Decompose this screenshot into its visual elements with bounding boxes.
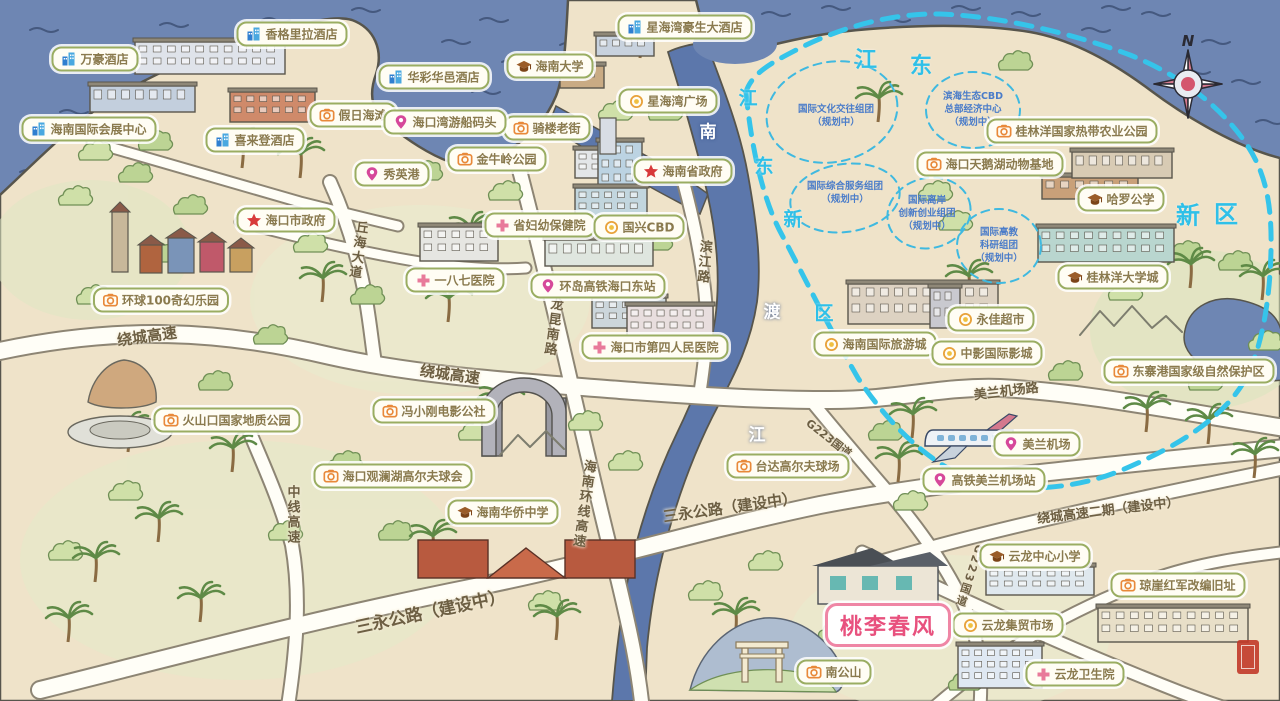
- poi-xinghai-bay-plaza[interactable]: 星海湾广场: [618, 89, 717, 114]
- camera-icon: [926, 157, 941, 172]
- poi-meilan-airport-hsr-station[interactable]: 高铁美兰机场站: [922, 468, 1045, 493]
- medical-cross-icon: [494, 218, 509, 233]
- poi-harrow-school[interactable]: 哈罗公学: [1077, 187, 1164, 212]
- poi-label: 海南华侨中学: [476, 504, 548, 521]
- poi-label: 海口观澜湖高尔夫球会: [342, 468, 462, 485]
- poi-label: 永佳超市: [976, 311, 1024, 328]
- compass-north-label: N: [1182, 32, 1195, 50]
- poi-qilou-old-street[interactable]: 骑楼老街: [503, 116, 590, 141]
- district-label-char: 新: [1176, 196, 1200, 231]
- poi-label: 金牛岭公园: [476, 151, 536, 168]
- poi-label: 桂林洋国家热带农业公园: [1015, 123, 1147, 140]
- map-pin-icon: [364, 167, 379, 182]
- poi-label: 海口湾游船码头: [412, 114, 496, 131]
- poi-label: 秀英港: [383, 166, 419, 183]
- camera-icon: [736, 459, 751, 474]
- red-star-icon: [246, 213, 261, 228]
- hotel-building-icon: [388, 70, 403, 85]
- planning-region-label: 国际高教 科研组团 （规划中）: [975, 227, 1023, 265]
- red-star-icon: [643, 164, 658, 179]
- poi-label: 哈罗公学: [1106, 191, 1154, 208]
- camera-icon: [319, 108, 334, 123]
- poi-fourth-peoples-hospital[interactable]: 海口市第四人民医院: [581, 335, 728, 360]
- poi-label: 海口天鹅湖动物基地: [945, 156, 1053, 173]
- poi-label: 云龙中心小学: [1008, 548, 1080, 565]
- poi-volcano-geopark[interactable]: 火山口国家地质公园: [153, 408, 300, 433]
- planning-region-label: 国际综合服务组团 （规划中）: [807, 181, 883, 207]
- poi-label: 海南国际旅游城: [842, 336, 926, 353]
- poi-xiuying-port[interactable]: 秀英港: [354, 162, 429, 187]
- map-pin-icon: [540, 279, 555, 294]
- poi-nangong-mountain[interactable]: 南公山: [796, 660, 871, 685]
- poi-hainan-convention-center[interactable]: 海南国际会展中心: [21, 117, 156, 142]
- poi-label: 星海湾广场: [647, 93, 707, 110]
- poi-taida-golf[interactable]: 台达高尔夫球场: [726, 454, 849, 479]
- district-label-char: 东: [754, 152, 773, 179]
- poi-yunlong-market[interactable]: 云龙集贸市场: [952, 613, 1063, 638]
- graduation-cap-icon: [457, 505, 472, 520]
- medical-cross-icon: [1035, 667, 1050, 682]
- featured-taoli-chunfeng[interactable]: 桃李春风: [825, 603, 951, 647]
- poi-guilinyang-university-town[interactable]: 桂林洋大学城: [1057, 265, 1168, 290]
- poi-label: 海南国际会展中心: [50, 121, 146, 138]
- camera-icon: [323, 469, 338, 484]
- camera-icon: [1113, 364, 1128, 379]
- poi-label: 高铁美兰机场站: [951, 472, 1035, 489]
- district-label-char: 东: [910, 48, 932, 80]
- road-label: 滨江路: [692, 239, 715, 285]
- poi-label: 省妇幼保健院: [513, 217, 585, 234]
- hotel-building-icon: [215, 133, 230, 148]
- poi-huacai-huayi-hotel[interactable]: 华彩华邑酒店: [378, 65, 489, 90]
- map-pin-icon: [1003, 437, 1018, 452]
- poi-haikou-east-station[interactable]: 环岛高铁海口东站: [530, 274, 665, 299]
- shop-dot-icon: [962, 618, 977, 633]
- poi-label: 骑楼老街: [532, 120, 580, 137]
- poi-city-government[interactable]: 海口市政府: [236, 208, 335, 233]
- compass-star-icon: [1152, 48, 1224, 120]
- poi-maternal-child-hospital[interactable]: 省妇幼保健院: [484, 213, 595, 238]
- poi-yongjia-supermarket[interactable]: 永佳超市: [947, 307, 1034, 332]
- poi-meilan-airport[interactable]: 美兰机场: [993, 432, 1080, 457]
- poi-label: 环岛高铁海口东站: [559, 278, 655, 295]
- graduation-cap-icon: [1087, 192, 1102, 207]
- poi-label: 海南省政府: [662, 163, 722, 180]
- poi-label: 一八七医院: [434, 272, 494, 289]
- poi-label: 台达高尔夫球场: [755, 458, 839, 475]
- medical-cross-icon: [415, 273, 430, 288]
- camera-icon: [806, 665, 821, 680]
- poi-movie-town-100[interactable]: 环球100奇幻乐园: [93, 288, 229, 313]
- planning-region-label: 国际文化交往组团 （规划中）: [798, 104, 874, 130]
- district-label-char: 江: [855, 42, 877, 74]
- hotel-building-icon: [246, 27, 261, 42]
- poi-label: 琼崖红军改编旧址: [1139, 577, 1235, 594]
- river-label-char: 渡: [764, 298, 781, 323]
- shop-dot-icon: [604, 220, 619, 235]
- poi-dongzhaigang-reserve[interactable]: 东寨港国家级自然保护区: [1103, 359, 1274, 384]
- poi-label: 火山口国家地质公园: [182, 412, 290, 429]
- poi-label: 南公山: [825, 664, 861, 681]
- poi-label: 云龙卫生院: [1054, 666, 1114, 683]
- poi-yunlong-primary-school[interactable]: 云龙中心小学: [979, 544, 1090, 569]
- poi-wanhao-hotel[interactable]: 万豪酒店: [51, 47, 138, 72]
- poi-label: 海口市政府: [265, 212, 325, 229]
- camera-icon: [382, 404, 397, 419]
- camera-icon: [996, 124, 1011, 139]
- poi-xinghaiwan-haosheng-hotel[interactable]: 星海湾豪生大酒店: [617, 15, 752, 40]
- camera-icon: [103, 293, 118, 308]
- poi-label: 冯小刚电影公社: [401, 403, 485, 420]
- poi-provincial-government[interactable]: 海南省政府: [633, 159, 732, 184]
- poi-label: 云龙集贸市场: [981, 617, 1053, 634]
- map-pin-icon: [932, 473, 947, 488]
- compass-rose: N: [1152, 48, 1224, 120]
- poi-qiongya-red-army-site[interactable]: 琼崖红军改编旧址: [1110, 573, 1245, 598]
- poi-guilinyang-agri-park[interactable]: 桂林洋国家热带农业公园: [986, 119, 1157, 144]
- poi-sheraton-hotel[interactable]: 喜来登酒店: [205, 128, 304, 153]
- poi-label: 星海湾豪生大酒店: [646, 19, 742, 36]
- poi-shangri-la-hotel[interactable]: 香格里拉酒店: [236, 22, 347, 47]
- poi-yunlong-clinic[interactable]: 云龙卫生院: [1025, 662, 1124, 687]
- poi-label: 中影国际影城: [960, 345, 1032, 362]
- poi-label: 华彩华邑酒店: [407, 69, 479, 86]
- graduation-cap-icon: [1067, 270, 1082, 285]
- hotel-building-icon: [61, 52, 76, 67]
- poi-label: 海南大学: [535, 58, 583, 75]
- poi-hospital-187[interactable]: 一八七医院: [405, 268, 504, 293]
- shop-dot-icon: [941, 346, 956, 361]
- poi-guoxing-cbd[interactable]: 国兴CBD: [594, 215, 685, 240]
- camera-icon: [457, 152, 472, 167]
- haikou-tourist-map: N 万豪酒店香格里拉酒店华彩华邑酒店喜来登酒店星海湾豪生大酒店海南国际会展中心假…: [0, 0, 1280, 701]
- planning-region-label: 国际离岸 创新创业组团 （规划中）: [898, 195, 955, 233]
- map-pin-icon: [393, 115, 408, 130]
- poi-china-film-cinema[interactable]: 中影国际影城: [931, 341, 1042, 366]
- camera-icon: [1120, 578, 1135, 593]
- shop-dot-icon: [957, 312, 972, 327]
- shop-dot-icon: [823, 337, 838, 352]
- poi-label: 香格里拉酒店: [265, 26, 337, 43]
- medical-cross-icon: [591, 340, 606, 355]
- poi-label: 国兴CBD: [623, 219, 675, 236]
- shop-dot-icon: [628, 94, 643, 109]
- poi-jinniuling-park[interactable]: 金牛岭公园: [447, 147, 546, 172]
- poi-swan-lake-animal-base[interactable]: 海口天鹅湖动物基地: [916, 152, 1063, 177]
- poi-label: 环球100奇幻乐园: [122, 292, 219, 309]
- river-label-char: 江: [749, 421, 766, 446]
- poi-fengxiaogang-movie-commune[interactable]: 冯小刚电影公社: [372, 399, 495, 424]
- poi-mission-hills-golf[interactable]: 海口观澜湖高尔夫球会: [313, 464, 472, 489]
- district-label-char: 区: [814, 299, 833, 326]
- district-label-char: 江: [738, 84, 757, 111]
- hotel-building-icon: [31, 122, 46, 137]
- artist-seal-stamp: [1237, 640, 1259, 674]
- district-label-char: 新: [783, 205, 802, 232]
- district-label-char: 区: [1214, 195, 1238, 230]
- poi-label: 美兰机场: [1022, 436, 1070, 453]
- road-label: 中线高速: [283, 485, 302, 545]
- poi-hainan-overseas-chinese-school[interactable]: 海南华侨中学: [447, 500, 558, 525]
- poi-haikou-bay-cruise-terminal[interactable]: 海口湾游船码头: [383, 110, 506, 135]
- poi-label: 万豪酒店: [80, 51, 128, 68]
- poi-label: 海口市第四人民医院: [610, 339, 718, 356]
- camera-icon: [163, 413, 178, 428]
- river-label-char: 南: [700, 118, 717, 143]
- poi-hainan-university[interactable]: 海南大学: [506, 54, 593, 79]
- poi-label: 假日海滩: [338, 107, 386, 124]
- poi-label: 东寨港国家级自然保护区: [1132, 363, 1264, 380]
- graduation-cap-icon: [516, 59, 531, 74]
- hotel-building-icon: [627, 20, 642, 35]
- graduation-cap-icon: [989, 549, 1004, 564]
- camera-icon: [513, 121, 528, 136]
- poi-label: 喜来登酒店: [234, 132, 294, 149]
- poi-hainan-intl-tourism-city[interactable]: 海南国际旅游城: [813, 332, 936, 357]
- poi-label: 桂林洋大学城: [1086, 269, 1158, 286]
